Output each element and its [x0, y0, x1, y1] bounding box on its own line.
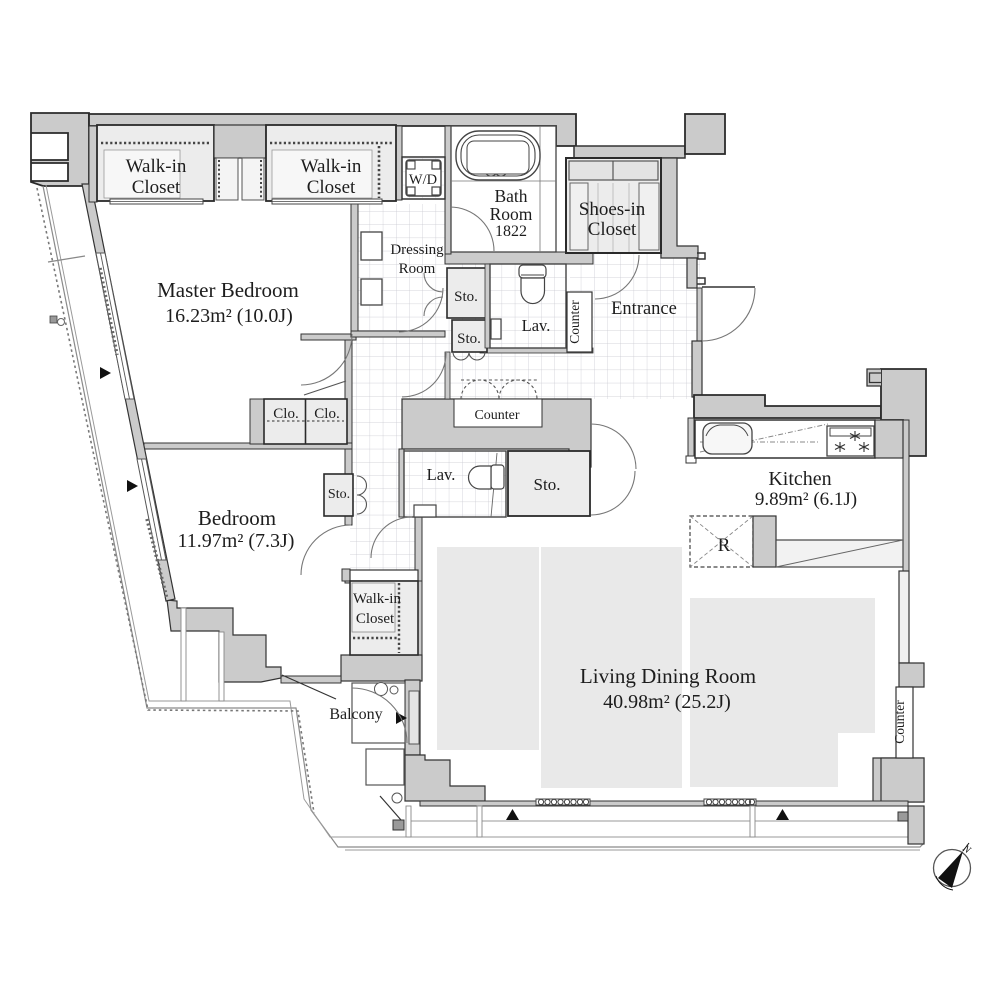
svg-text:Room: Room [399, 261, 436, 277]
svg-text:Kitchen: Kitchen [768, 468, 831, 490]
svg-text:Bedroom: Bedroom [198, 506, 276, 530]
svg-text:Bath: Bath [494, 186, 527, 206]
svg-text:Sto.: Sto. [328, 487, 350, 502]
svg-text:11.97m² (7.3J): 11.97m² (7.3J) [178, 530, 295, 552]
svg-text:W/D: W/D [409, 172, 437, 188]
svg-text:Sto.: Sto. [454, 289, 478, 305]
svg-text:Walk-in: Walk-in [301, 156, 362, 177]
svg-text:16.23m² (10.0J): 16.23m² (10.0J) [165, 305, 293, 327]
svg-text:Room: Room [490, 204, 533, 224]
svg-text:Lav.: Lav. [522, 316, 551, 335]
svg-text:Counter: Counter [892, 700, 907, 744]
svg-text:Closet: Closet [588, 219, 637, 240]
svg-text:Balcony: Balcony [329, 706, 382, 723]
svg-text:Walk-in: Walk-in [126, 156, 187, 177]
svg-text:Closet: Closet [356, 611, 395, 627]
svg-text:Entrance: Entrance [611, 299, 677, 319]
svg-text:Dressing: Dressing [390, 242, 444, 258]
svg-text:1822: 1822 [495, 223, 527, 240]
svg-text:Living Dining Room: Living Dining Room [580, 664, 756, 688]
svg-text:Clo.: Clo. [273, 406, 298, 422]
svg-text:Closet: Closet [132, 177, 181, 198]
svg-text:Counter: Counter [474, 408, 519, 423]
svg-text:Sto.: Sto. [534, 475, 561, 494]
svg-text:R: R [718, 535, 731, 556]
svg-text:Closet: Closet [307, 177, 356, 198]
svg-text:Clo.: Clo. [314, 406, 339, 422]
svg-text:Walk-in: Walk-in [353, 591, 401, 607]
svg-text:Master Bedroom: Master Bedroom [157, 278, 299, 302]
svg-text:Shoes-in: Shoes-in [579, 199, 646, 220]
svg-text:40.98m² (25.2J): 40.98m² (25.2J) [603, 691, 731, 713]
svg-text:Lav.: Lav. [427, 465, 456, 484]
svg-text:Counter: Counter [567, 300, 582, 344]
svg-text:Sto.: Sto. [457, 331, 481, 347]
svg-text:9.89m² (6.1J): 9.89m² (6.1J) [755, 489, 857, 510]
